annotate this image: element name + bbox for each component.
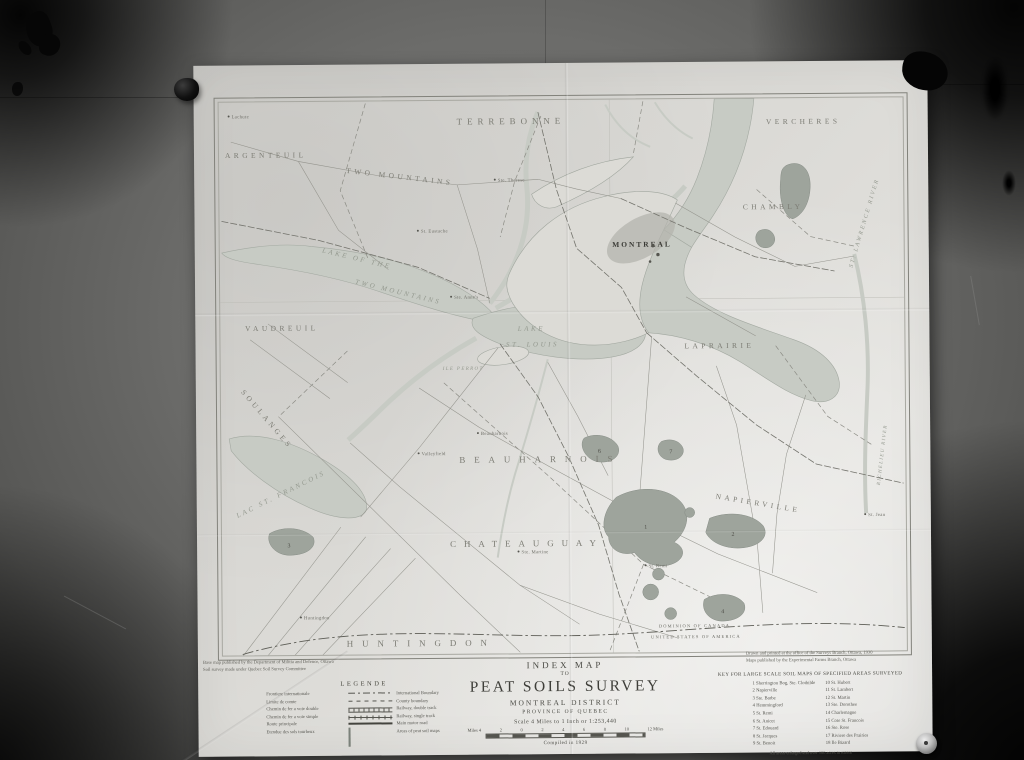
- title-block: INDEX MAP TO PEAT SOILS SURVEY MONTREAL …: [448, 659, 683, 747]
- scale-left-label: Miles 4: [468, 728, 482, 733]
- town-dot: [228, 115, 230, 117]
- bog-number: 4: [721, 609, 724, 615]
- symbol-railway-double: [348, 708, 392, 713]
- label-lake-st-louis: ST. LOUIS: [506, 341, 559, 348]
- note-line: Soil survey made under Quebec Soil Surve…: [203, 665, 398, 673]
- town-dot: [418, 452, 420, 454]
- wall-scratch: [64, 596, 126, 630]
- key-item: 15 Cote St. Francois: [826, 717, 869, 725]
- title-montreal-district: MONTREAL DISTRICT: [448, 697, 682, 708]
- legend-row: Limite de comte County boundary: [266, 697, 462, 704]
- wall-smudge: [12, 82, 23, 96]
- key-footnote: All areas enlarged and over 100 acres in…: [697, 750, 925, 757]
- town-dot: [645, 564, 647, 566]
- note-line: Maps published by the Experimental Farms…: [746, 656, 918, 664]
- town-label: Ste. Martine: [521, 550, 548, 555]
- label-two-mountains: TWO MOUNTAINS: [346, 166, 454, 187]
- legend-fr: Etendue des sols tourbeux: [267, 729, 345, 735]
- legend-en: Railway, double track: [396, 705, 466, 711]
- wall-seam: [545, 0, 546, 66]
- legend-fr: Chemin de fer a voie double: [266, 706, 344, 712]
- scale-tick: 10: [624, 726, 629, 731]
- label-united-states: UNITED STATES OF AMERICA: [651, 634, 741, 640]
- legend-fr: Limite de comte: [266, 698, 344, 704]
- wall-smudge: [1002, 170, 1016, 196]
- label-chateauguay: CHATEAUGUAY: [450, 538, 604, 549]
- key-title: KEY FOR LARGE SCALE SOIL MAPS OF SPECIFI…: [696, 671, 924, 678]
- push-pin-bottom-right: [916, 733, 937, 754]
- label-lake-st-louis: LAKE: [517, 326, 545, 333]
- wall-seam: [0, 97, 200, 98]
- symbol-international-boundary: [348, 692, 392, 693]
- legend-row: Frontiere internationale International B…: [266, 690, 462, 697]
- scale-tick: 2: [541, 727, 543, 732]
- label-napierville: NAPIERVILLE: [715, 492, 801, 515]
- legend-fr: Chemin de fer a voie simple: [266, 714, 344, 720]
- photograph-background: 1 2 3 4 6 7 TERREBONNE VERCHERES ARGENTE…: [0, 0, 1024, 760]
- symbol-main-road: [348, 723, 392, 725]
- scale-tick: 2: [500, 727, 502, 732]
- scale-tick: 4: [562, 727, 564, 732]
- town-label: Lachute: [232, 115, 249, 120]
- legend-en: International Boundary: [396, 690, 466, 696]
- city-dot: [651, 244, 654, 247]
- legend-en: Railway, single track: [396, 713, 466, 719]
- label-vaudreuil: VAUDREUIL: [245, 323, 319, 333]
- town-dot: [300, 616, 302, 618]
- push-pin-top-left: [174, 78, 199, 101]
- scale-tick: 6: [583, 727, 585, 732]
- symbol-county-boundary: [348, 700, 392, 701]
- legend-en: County boundary: [396, 697, 466, 703]
- symbol-railway-single: [348, 715, 392, 719]
- label-terrebonne: TERREBONNE: [457, 116, 566, 127]
- key-item: 17 Riviere des Prairies: [826, 732, 869, 740]
- town-dot: [450, 296, 452, 298]
- symbol-peat-area: [349, 728, 351, 747]
- label-argenteuil: ARGENTEUIL: [225, 150, 307, 160]
- legend-title: LEGENDE: [266, 680, 462, 689]
- key-item: 1 Sherrington Bog, Ste. Clothilde: [752, 680, 815, 688]
- title-province: PROVINCE OF QUEBEC: [448, 708, 682, 716]
- label-huntingdon: HUNTINGDON: [347, 638, 496, 649]
- legend-fr: Frontiere internationale: [266, 691, 344, 697]
- legend-row: Chemin de fer a voie simple Railway, sin…: [266, 713, 462, 720]
- town-label: Ste. Therese: [498, 178, 525, 183]
- publisher-note-left: Base map published by the Department of …: [203, 658, 398, 673]
- town-dot: [864, 513, 866, 515]
- label-richelieu-river: RICHELIEU RIVER: [877, 424, 889, 486]
- town-label: Beauharnois: [481, 432, 508, 437]
- label-ile-perrot: ILE PERROT: [442, 367, 484, 372]
- town-dot: [417, 230, 419, 232]
- key-large-scale-maps: KEY FOR LARGE SCALE SOIL MAPS OF SPECIFI…: [696, 671, 925, 756]
- wall-scratch: [970, 276, 980, 325]
- key-column-right: 10 St. Hubert 11 St. Lambert 12 St. Mart…: [825, 679, 868, 748]
- scale-bar: [486, 732, 646, 738]
- scale-tick: 0: [520, 727, 522, 732]
- label-laprairie: LAPRAIRIE: [684, 341, 754, 351]
- legend: LEGENDE Frontiere internationale Interna…: [266, 680, 462, 737]
- publisher-note-right: Drawn and printed at the office of the S…: [746, 649, 918, 664]
- compiled-note: Compiled in 1929: [449, 740, 683, 747]
- legend-en: Areas of peat soil maps: [397, 728, 467, 734]
- town-label: St. Jean: [868, 513, 886, 518]
- scale-statement: Scale 4 Miles to 1 Inch or 1:253,440: [448, 718, 682, 726]
- legend-row: Route principale Main motor road: [266, 720, 462, 727]
- town-dot: [518, 550, 520, 552]
- bog-number: 3: [287, 543, 290, 549]
- label-dominion-of-canada: DOMINION OF CANADA: [659, 623, 730, 629]
- label-chambly: CHAMBLY: [743, 202, 804, 211]
- key-item: 9 St. Benoit: [753, 740, 816, 748]
- label-vercheres: VERCHERES: [766, 117, 841, 127]
- label-beauharnois: BEAUHARNOIS: [459, 454, 621, 465]
- bog-number: 1: [644, 525, 647, 531]
- scale-right-label: 12 Miles: [648, 726, 664, 731]
- town-label: Huntingdon: [304, 616, 330, 621]
- scale-tick: 8: [604, 727, 606, 732]
- title-peat-soils-survey: PEAT SOILS SURVEY: [448, 677, 682, 697]
- city-dot: [656, 253, 659, 256]
- roads: [231, 137, 858, 655]
- key-column-left: 1 Sherrington Bog, Ste. Clothilde 2 Napi…: [752, 680, 815, 749]
- label-montreal: MONTREAL: [612, 240, 672, 249]
- label-st-lawrence-river: ST. LAWRENCE RIVER: [849, 178, 881, 269]
- town-label: Ste. Anne's: [454, 296, 479, 301]
- legend-fr: Route principale: [266, 721, 344, 727]
- wall-smudge: [982, 58, 1008, 120]
- legend-row: Etendue des sols tourbeux Areas of peat …: [267, 728, 463, 735]
- city-dot: [649, 260, 652, 263]
- town-label: St. Remi: [648, 564, 667, 569]
- boundary-captions: DOMINION OF CANADA UNITED STATES OF AMER…: [651, 623, 741, 640]
- town-label: Valleyfield: [422, 452, 446, 457]
- index-map: 1 2 3 4 6 7 TERREBONNE VERCHERES ARGENTE…: [219, 97, 907, 655]
- bog-number: 7: [669, 449, 672, 455]
- town-dot: [494, 179, 496, 181]
- town-label: St. Eustache: [421, 229, 448, 234]
- key-item: 18 Ile Bizard: [826, 740, 869, 748]
- legend-en: Main motor road: [396, 720, 466, 726]
- map-frame: 1 2 3 4 6 7 TERREBONNE VERCHERES ARGENTE…: [214, 92, 912, 660]
- town-dot: [477, 432, 479, 434]
- map-paper: 1 2 3 4 6 7 TERREBONNE VERCHERES ARGENTE…: [193, 60, 932, 757]
- legend-row: Chemin de fer a voie double Railway, dou…: [266, 705, 462, 712]
- title-index-map: INDEX MAP: [448, 659, 682, 671]
- bog-number: 2: [732, 532, 735, 538]
